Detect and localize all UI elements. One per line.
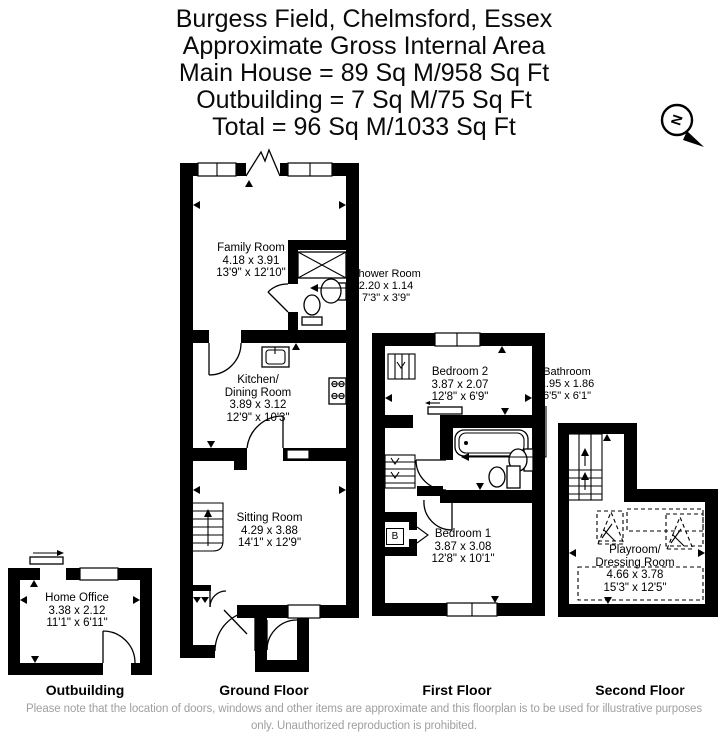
room-dims-metric: 3.87 x 2.07 (400, 379, 520, 392)
room-name: Shower Room (338, 268, 434, 280)
room-dims-metric: 3.38 x 2.12 (22, 605, 132, 618)
room-label-sitting-room: Sitting Room 4.29 x 3.88 14'1" x 12'9" (212, 512, 327, 550)
room-dims-metric: 2.20 x 1.14 (338, 280, 434, 292)
room-label-bedroom-1: Bedroom 1 3.87 x 3.08 12'8" x 10'1" (403, 528, 523, 566)
floor-label-outbuilding: Outbuilding (25, 682, 145, 698)
boiler-label: B (386, 528, 404, 545)
room-label-home-office: Home Office 3.38 x 2.12 11'1" x 6'11" (22, 592, 132, 630)
shower-room-toilet-icon (302, 295, 322, 325)
room-name: Playroom/ (575, 544, 695, 557)
room-dims-imperial: 12'9" x 10'3" (198, 412, 318, 425)
kitchen-sink-icon (262, 347, 289, 367)
bathroom-door (416, 460, 446, 490)
room-name: Bedroom 2 (400, 366, 520, 379)
room-dims-imperial: 11'1" x 6'11" (22, 617, 132, 630)
compass-north-label: N (668, 113, 686, 128)
room-label-kitchen-dining-room: Kitchen/ Dining Room 3.89 x 3.12 12'9" x… (198, 374, 318, 424)
room-dims-metric: 4.18 x 3.91 (192, 255, 310, 268)
room-label-family-room: Family Room 4.18 x 3.91 13'9" x 12'10" (192, 242, 310, 280)
room-dims-metric: 4.66 x 3.78 (575, 569, 695, 582)
room-label-playroom-dressing-room: Playroom/ Dressing Room 4.66 x 3.78 15'3… (575, 544, 695, 594)
compass-icon: N (662, 105, 704, 147)
room-name: Bathroom (536, 366, 598, 378)
floor-label-first-floor: First Floor (397, 682, 517, 698)
bathroom-toilet-icon (489, 466, 520, 488)
room-label-shower-room: Shower Room 2.20 x 1.14 7'3" x 3'9" (338, 268, 434, 304)
dormer-symbol-left (598, 512, 624, 544)
room-dims-imperial: 13'9" x 12'10" (192, 267, 310, 280)
room-name: Family Room (192, 242, 310, 255)
room-dims-imperial: 15'3" x 12'5" (575, 582, 695, 595)
floor-label-second-floor: Second Floor (580, 682, 700, 698)
room-name: Sitting Room (212, 512, 327, 525)
room-dims-metric: 3.87 x 3.08 (403, 541, 523, 554)
disclaimer-note: Please note that the location of doors, … (14, 701, 714, 734)
room-dims-imperial: 12'8" x 10'1" (403, 553, 523, 566)
bedroom1-door (424, 500, 452, 530)
room-dims-metric: 1.95 x 1.86 (536, 378, 598, 390)
hob-icon (329, 378, 346, 404)
room-label-bathroom: Bathroom 1.95 x 1.86 6'5" x 6'1" (536, 366, 598, 402)
room-dims-metric: 3.89 x 3.12 (198, 399, 318, 412)
room-label-bedroom-2: Bedroom 2 3.87 x 2.07 12'8" x 6'9" (400, 366, 520, 404)
entrance-doors (193, 591, 297, 651)
room-dims-imperial: 14'1" x 12'9" (212, 537, 327, 550)
compass-needle (683, 131, 704, 147)
room-name: Dining Room (198, 387, 318, 400)
floorplan-page: Burgess Field, Chelmsford, Essex Approxi… (0, 0, 728, 736)
room-dims-imperial: 7'3" x 3'9" (338, 292, 434, 304)
second-floor-stairs-icon (568, 434, 602, 500)
room-name: Bedroom 1 (403, 528, 523, 541)
room-name: Dressing Room (575, 557, 695, 570)
landing-stairs-icon (385, 455, 415, 488)
sliding-door-icon (30, 550, 64, 564)
room-name: Home Office (22, 592, 132, 605)
room-dims-imperial: 12'8" x 6'9" (400, 391, 520, 404)
floor-label-ground-floor: Ground Floor (204, 682, 324, 698)
room-name: Kitchen/ (198, 374, 318, 387)
shower-room-door (268, 284, 288, 312)
room-dims-imperial: 6'5" x 6'1" (536, 390, 598, 402)
room-dims-metric: 4.29 x 3.88 (212, 525, 327, 538)
bay-window (246, 150, 280, 176)
kitchen-door (209, 343, 241, 375)
outbuilding-door (103, 631, 135, 663)
